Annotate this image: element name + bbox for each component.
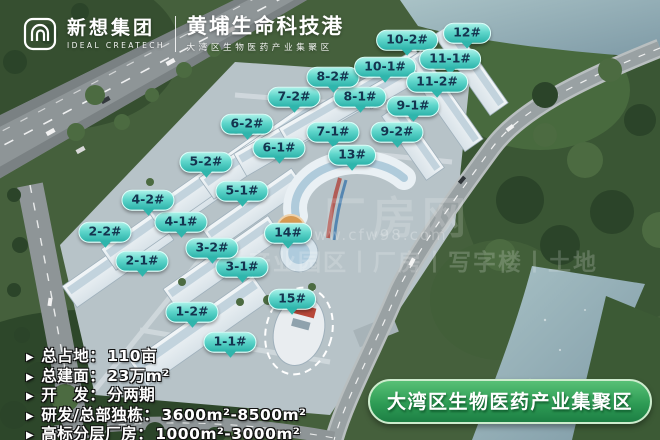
cluster-banner-text: 大湾区生物医药产业集聚区: [387, 391, 633, 413]
triangle-bullet-icon: ▶: [26, 411, 34, 422]
triangle-bullet-icon: ▶: [26, 352, 34, 363]
brand-block: 新想集团 IDEAL CREATECH: [67, 18, 165, 50]
stat-item: ▶高标分层厂房：1000m²-3000m²: [26, 422, 306, 440]
stat-value: 1000m²-3000m²: [155, 425, 300, 440]
header: 新想集团 IDEAL CREATECH 黄埔生命科技港 大湾区生物医药产业集聚区: [22, 15, 344, 53]
project-block: 黄埔生命科技港 大湾区生物医药产业集聚区: [186, 15, 344, 53]
stat-item: ▶总占地：110亩: [26, 344, 306, 364]
stat-value: 3600m²-8500m²: [161, 406, 306, 424]
company-logo-icon: [22, 16, 58, 52]
project-title: 黄埔生命科技港: [186, 15, 344, 38]
stat-item: ▶总建面：23万m²: [26, 364, 306, 384]
triangle-bullet-icon: ▶: [26, 430, 34, 440]
project-subtitle: 大湾区生物医药产业集聚区: [186, 41, 332, 53]
brand-name: 新想集团: [67, 18, 155, 39]
cluster-banner: 大湾区生物医药产业集聚区: [368, 379, 652, 424]
stat-label: 高标分层厂房：: [41, 422, 153, 440]
round-building-14: [280, 234, 318, 272]
project-stats: ▶总占地：110亩▶总建面：23万m²▶开 发：分两期▶研发/总部独栋：3600…: [26, 344, 306, 440]
triangle-bullet-icon: ▶: [26, 372, 34, 383]
poster: 厂房网 www.cfw98.com 产业园区丨厂房丨写字楼丨土地 1-1#1-2…: [0, 0, 660, 440]
brand-name-en: IDEAL CREATECH: [67, 41, 165, 50]
stat-item: ▶研发/总部独栋：3600m²-8500m²: [26, 403, 306, 423]
triangle-bullet-icon: ▶: [26, 391, 34, 402]
stat-item: ▶开 发：分两期: [26, 383, 306, 403]
header-divider: [175, 16, 177, 52]
